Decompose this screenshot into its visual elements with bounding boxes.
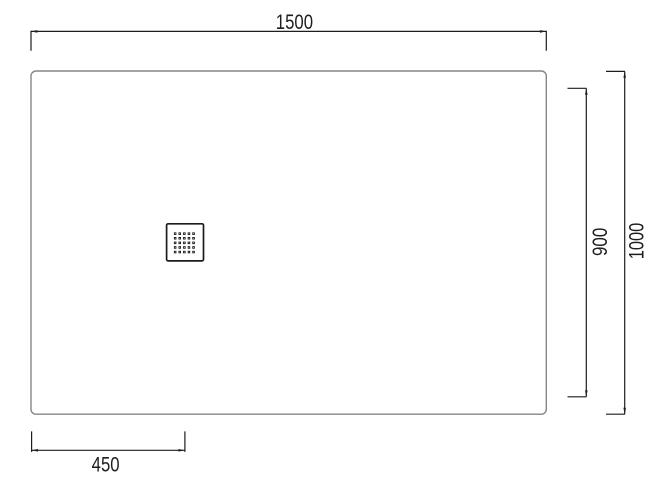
svg-text:900: 900	[589, 228, 612, 256]
svg-text:450: 450	[92, 453, 120, 476]
svg-text:1500: 1500	[276, 11, 313, 34]
svg-text:1000: 1000	[626, 223, 649, 260]
